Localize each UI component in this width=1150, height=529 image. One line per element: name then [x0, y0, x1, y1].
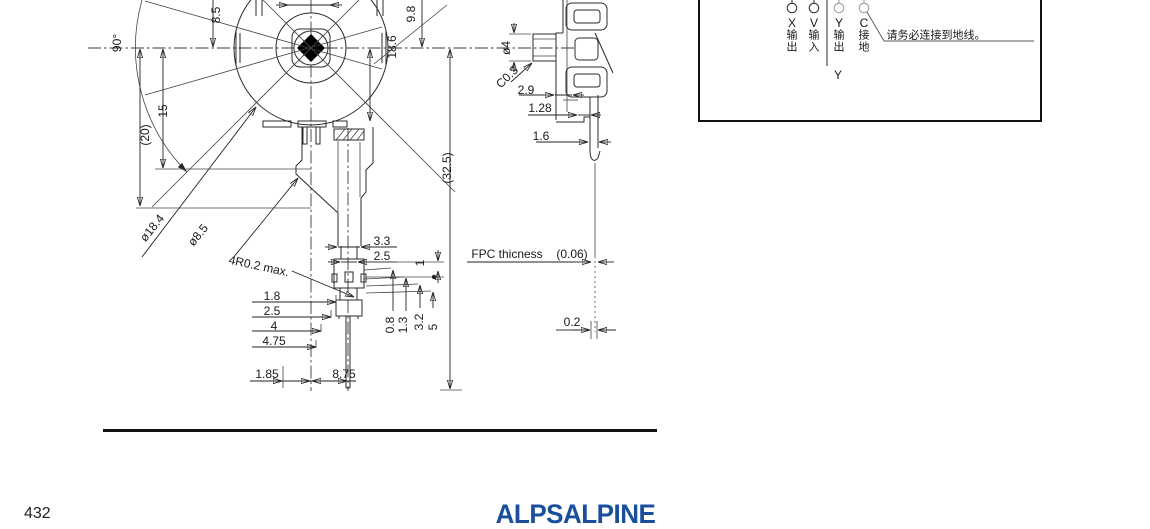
alps-alpine-logo: ALPSALPINE [488, 499, 663, 529]
terminal-label-x-output: 输出 [786, 31, 799, 54]
dim-label-3-2: 3.2 [413, 314, 425, 331]
ground-connection-note: 请务必连接到地线。 [887, 31, 986, 42]
datasheet-page: 8.5 90° 15 (20) ø18.4 ø8.5 9.8 18.6 (32.… [0, 0, 1150, 529]
dim-label-1-6: 1.6 [533, 130, 550, 142]
footer-divider [103, 429, 657, 432]
dim-label-9-8: 9.8 [405, 6, 417, 23]
dim-label-32-5: (32.5) [441, 152, 453, 183]
dim-label-90deg: 90° [111, 34, 123, 52]
terminal-letter-c: C [860, 17, 869, 29]
circuit-diagram-box [698, 0, 1042, 122]
dim-label-2-5: 2.5 [264, 305, 281, 317]
dim-label-0-2: 0.2 [564, 316, 581, 328]
terminal-letter-v: V [810, 17, 818, 29]
fpc-thickness-label: FPC thicness [471, 248, 542, 260]
page-number: 432 [24, 505, 51, 523]
dim-label-5: 5 [427, 324, 439, 331]
dim-label-8-5: 8.5 [210, 7, 222, 24]
terminal-letter-y: Y [835, 17, 843, 29]
front-view-construction-lines [135, 0, 455, 258]
dim-label-2-9: 2.9 [518, 84, 535, 96]
dim-label-1: 1 [414, 260, 426, 267]
terminal-label-v-input: 输入 [808, 31, 821, 54]
front-view-dimension-lines [136, 0, 462, 390]
side-view-dimension-lines [467, 23, 616, 339]
dim-label-2-5-top: 2.5 [374, 250, 391, 262]
dim-label-4: 4 [271, 320, 278, 332]
dim-label-4-75: 4.75 [262, 335, 285, 347]
dim-label-3-3: 3.3 [374, 235, 391, 247]
front-view-centerlines [88, 0, 576, 391]
terminal-label-y-output: 输出 [833, 31, 846, 54]
dim-label-1-28: 1.28 [528, 102, 551, 114]
dim-label-8-75: 8.75 [332, 368, 355, 380]
fpc-thickness-value: (0.06) [556, 248, 587, 260]
dim-label-15: 15 [157, 104, 169, 117]
dim-label-1-85: 1.85 [255, 368, 278, 380]
terminal-letter-x: X [788, 17, 796, 29]
dim-label-20: (20) [139, 124, 151, 145]
dim-label-dia4: ø4 [500, 41, 512, 55]
axis-label-y: Y [834, 69, 842, 81]
dim-label-18-6: 18.6 [386, 35, 398, 58]
terminal-label-c-ground: 接地 [858, 31, 871, 54]
side-view-body [533, 0, 613, 332]
dim-label-1-3: 1.3 [397, 317, 409, 334]
dim-label-1-8: 1.8 [264, 290, 281, 302]
dim-label-0-8: 0.8 [384, 317, 396, 334]
